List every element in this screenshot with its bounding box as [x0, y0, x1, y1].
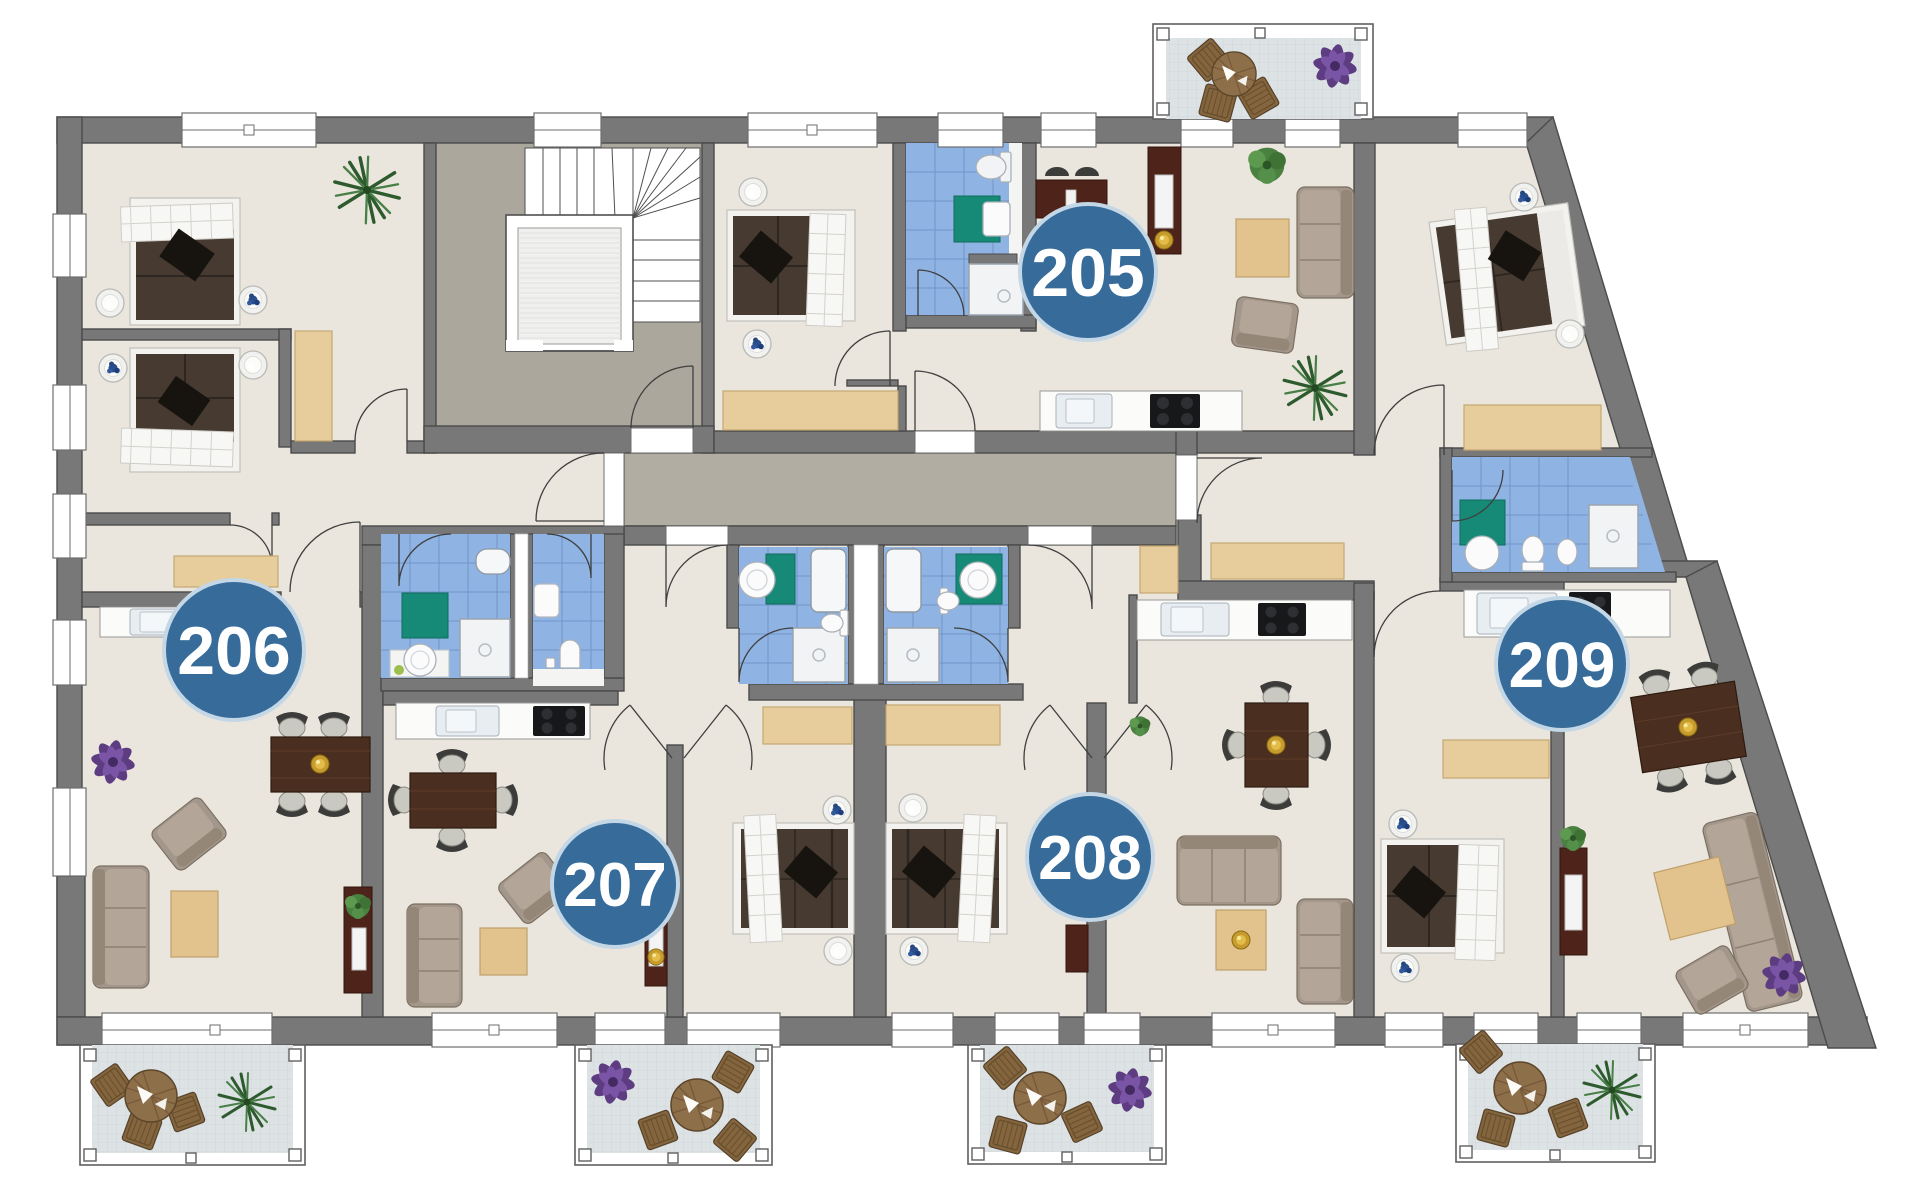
svg-text:208: 208: [1038, 824, 1141, 893]
svg-text:206: 206: [177, 613, 290, 689]
svg-text:205: 205: [1031, 235, 1144, 311]
svg-text:207: 207: [563, 851, 666, 920]
svg-text:209: 209: [1509, 629, 1616, 701]
